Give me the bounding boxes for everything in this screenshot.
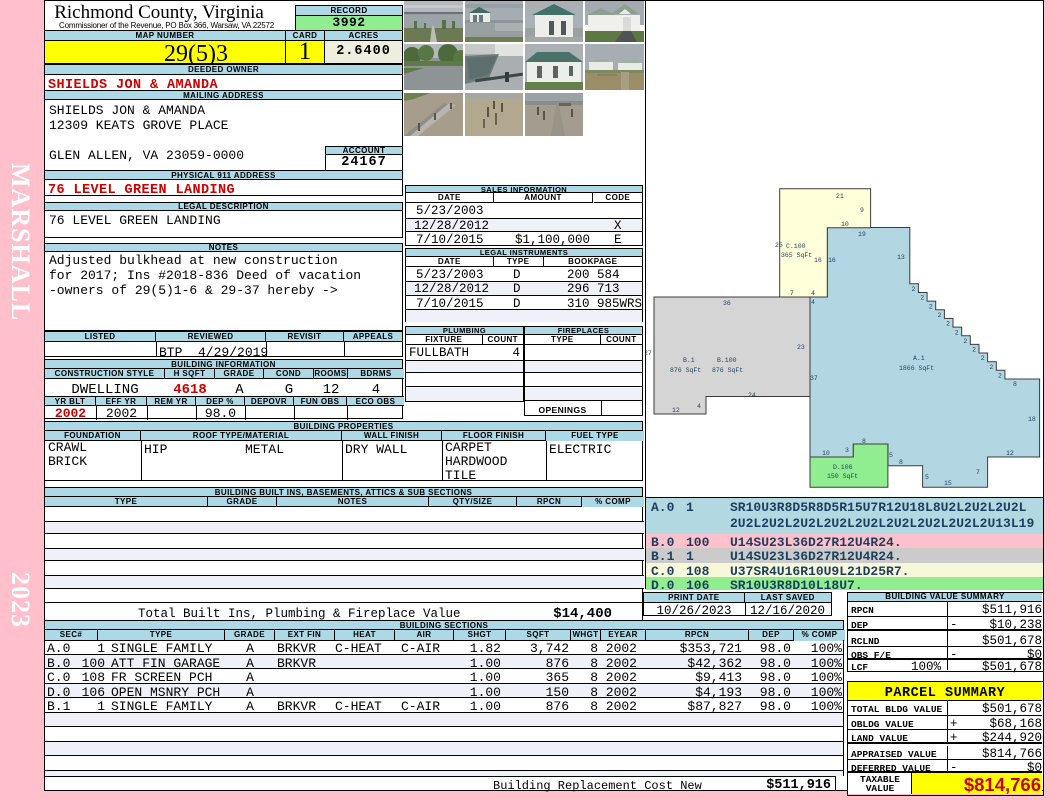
svg-text:5: 5	[889, 452, 893, 459]
svg-text:7: 7	[976, 469, 980, 476]
svg-text:8: 8	[1013, 381, 1017, 388]
svg-text:365 SqFt: 365 SqFt	[781, 252, 812, 259]
svg-text:12: 12	[1006, 450, 1014, 457]
svg-text:10: 10	[841, 221, 849, 228]
svg-text:2: 2	[912, 286, 916, 293]
svg-text:5: 5	[925, 474, 929, 481]
svg-text:C.100: C.100	[786, 243, 806, 250]
svg-text:150 SqFt: 150 SqFt	[827, 473, 858, 480]
svg-text:12: 12	[672, 407, 680, 414]
svg-text:B.100: B.100	[717, 357, 737, 364]
svg-text:4: 4	[811, 299, 815, 306]
svg-text:1866 SqFt: 1866 SqFt	[899, 365, 934, 372]
svg-text:2: 2	[972, 347, 976, 354]
svg-text:37: 37	[810, 375, 818, 382]
svg-text:7: 7	[790, 290, 794, 297]
svg-text:2: 2	[920, 295, 924, 302]
svg-text:2: 2	[998, 373, 1002, 380]
svg-text:2: 2	[955, 329, 959, 336]
svg-text:9: 9	[860, 207, 864, 214]
svg-text:36: 36	[723, 300, 731, 307]
svg-text:2: 2	[963, 338, 967, 345]
svg-text:2: 2	[989, 364, 993, 371]
svg-text:24: 24	[748, 392, 756, 399]
svg-text:4: 4	[811, 290, 815, 297]
svg-text:A.1: A.1	[913, 355, 925, 362]
svg-text:16: 16	[814, 257, 822, 264]
svg-text:2: 2	[946, 321, 950, 328]
svg-text:18: 18	[1028, 416, 1036, 423]
svg-text:25: 25	[775, 242, 783, 249]
svg-text:8: 8	[899, 459, 903, 466]
svg-text:B.1: B.1	[683, 357, 695, 364]
svg-text:23: 23	[797, 344, 805, 351]
svg-text:10: 10	[822, 450, 830, 457]
svg-text:19: 19	[858, 231, 866, 238]
svg-text:13: 13	[897, 254, 905, 261]
svg-text:876 SqFt: 876 SqFt	[712, 367, 743, 374]
svg-text:8: 8	[862, 438, 866, 445]
svg-text:876 SqFt: 876 SqFt	[670, 367, 701, 374]
svg-text:4: 4	[697, 403, 701, 410]
svg-text:16: 16	[828, 257, 836, 264]
svg-text:2: 2	[981, 355, 985, 362]
svg-text:2: 2	[938, 312, 942, 319]
svg-text:D.106: D.106	[833, 464, 853, 471]
svg-text:2: 2	[929, 303, 933, 310]
svg-text:3: 3	[845, 447, 849, 454]
svg-text:27: 27	[645, 350, 652, 357]
svg-text:21: 21	[836, 193, 844, 200]
svg-text:15: 15	[944, 480, 952, 487]
